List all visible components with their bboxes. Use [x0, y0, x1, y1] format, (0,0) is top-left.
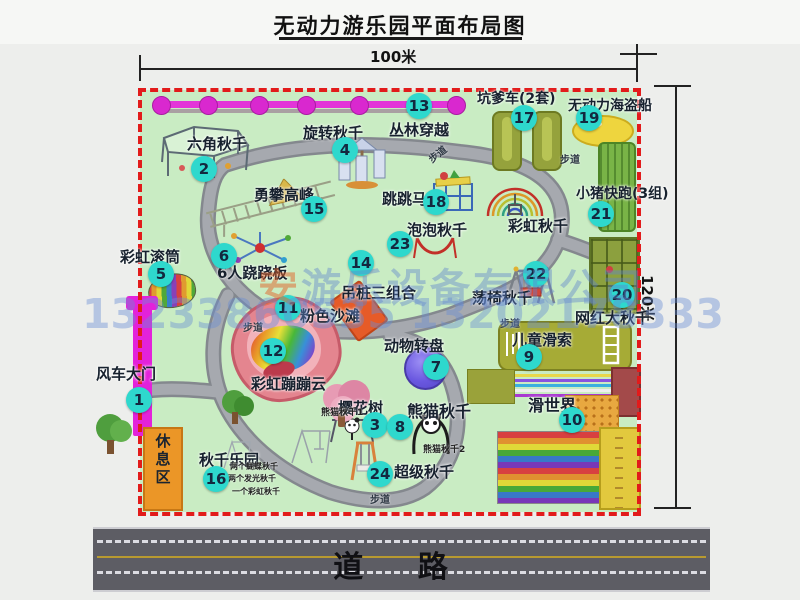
title-underline — [279, 37, 522, 40]
swing-park-detail-2: 两个发光秋千 — [228, 473, 276, 484]
badge-4: 4 — [332, 137, 358, 163]
badge-10: 10 — [559, 407, 585, 433]
label-windmill-gate: 风车大门 — [96, 363, 156, 384]
label-panda-swing-1: 熊猫秋千1 — [321, 405, 363, 418]
label-jumping-horse: 跳跳马 — [382, 188, 427, 209]
dim-top-cross — [620, 53, 657, 55]
swing-park-detail-1: 两个蝴蝶秋千 — [230, 461, 278, 472]
badge-19: 19 — [576, 105, 602, 131]
swing-park-detail-3: 一个彩虹秋千 — [232, 486, 280, 497]
path-label: 步道 — [370, 491, 390, 506]
label-panda-swing: 熊猫秋千 — [407, 398, 471, 422]
slide-world-block — [467, 369, 515, 404]
jungle-crossing-node — [447, 96, 466, 115]
jungle-crossing-node — [199, 96, 218, 115]
label-kengdie-cars: 坑爹车(2套) — [477, 88, 556, 108]
swing-sketch-icon — [286, 423, 338, 467]
dim-right-tick-bottom — [654, 507, 691, 509]
path-label: 步道 — [560, 151, 580, 166]
badge-2: 2 — [191, 156, 217, 182]
jungle-crossing-node — [152, 96, 171, 115]
slide-world-yellow-strip — [599, 427, 641, 510]
badge-18: 18 — [423, 189, 449, 215]
badge-1: 1 — [126, 387, 152, 413]
badge-15: 15 — [301, 196, 327, 222]
rainbow-slide-icon — [497, 431, 600, 504]
tree-trunk — [107, 440, 114, 454]
badge-16: 16 — [203, 466, 229, 492]
jungle-crossing-node — [297, 96, 316, 115]
dim-top-line — [140, 68, 637, 70]
badge-5: 5 — [148, 261, 174, 287]
badge-8: 8 — [387, 414, 413, 440]
label-piggy-run: 小猪快跑(3组) — [576, 183, 669, 203]
badge-23: 23 — [387, 231, 413, 257]
tree-trunk — [232, 412, 238, 424]
dim-top-tick-left — [139, 55, 141, 81]
label-panda-swing-2: 熊猫秋千2 — [423, 442, 465, 455]
label-animal-carousel: 动物转盘 — [384, 335, 444, 356]
watermark-phone: 13233860535 13202178333 — [82, 290, 724, 338]
page-title: 无动力游乐园平面布局图 — [0, 10, 800, 40]
badge-9: 9 — [516, 344, 542, 370]
dim-right-tick-top — [654, 85, 691, 87]
badge-7: 7 — [423, 354, 449, 380]
label-jungle-crossing: 丛林穿越 — [389, 119, 449, 140]
badge-17: 17 — [511, 105, 537, 131]
badge-12: 12 — [260, 338, 286, 364]
dim-top-tick-right — [636, 44, 638, 82]
road-label: 道 路 — [93, 542, 710, 586]
label-bubble-swing: 泡泡秋千 — [407, 219, 467, 240]
rainbow-swing-icon — [484, 178, 546, 218]
dim-width-label: 100米 — [370, 46, 416, 67]
badge-21: 21 — [588, 201, 614, 227]
screenshot-root: 无动力游乐园平面布局图 100米 120米 — [0, 0, 800, 600]
label-rainbow-swing: 彩虹秋千 — [508, 215, 568, 236]
badge-6: 6 — [211, 243, 237, 269]
road: 道 路 — [93, 527, 710, 592]
badge-24: 24 — [367, 461, 393, 487]
label-hexagon-swing: 六角秋千 — [187, 133, 247, 154]
label-rainbow-roller: 彩虹滚筒 — [120, 246, 180, 267]
rest-area-box: 休息区 — [143, 427, 183, 511]
jungle-crossing-node — [350, 96, 369, 115]
badge-13: 13 — [406, 93, 432, 119]
tree-icon — [110, 420, 132, 442]
label-rainbow-bounce-cloud: 彩虹蹦蹦云 — [251, 373, 326, 394]
jungle-crossing-node — [250, 96, 269, 115]
rest-area-label: 休息区 — [153, 433, 174, 487]
label-super-swing: 超级秋千 — [394, 461, 454, 482]
badge-3: 3 — [362, 412, 388, 438]
